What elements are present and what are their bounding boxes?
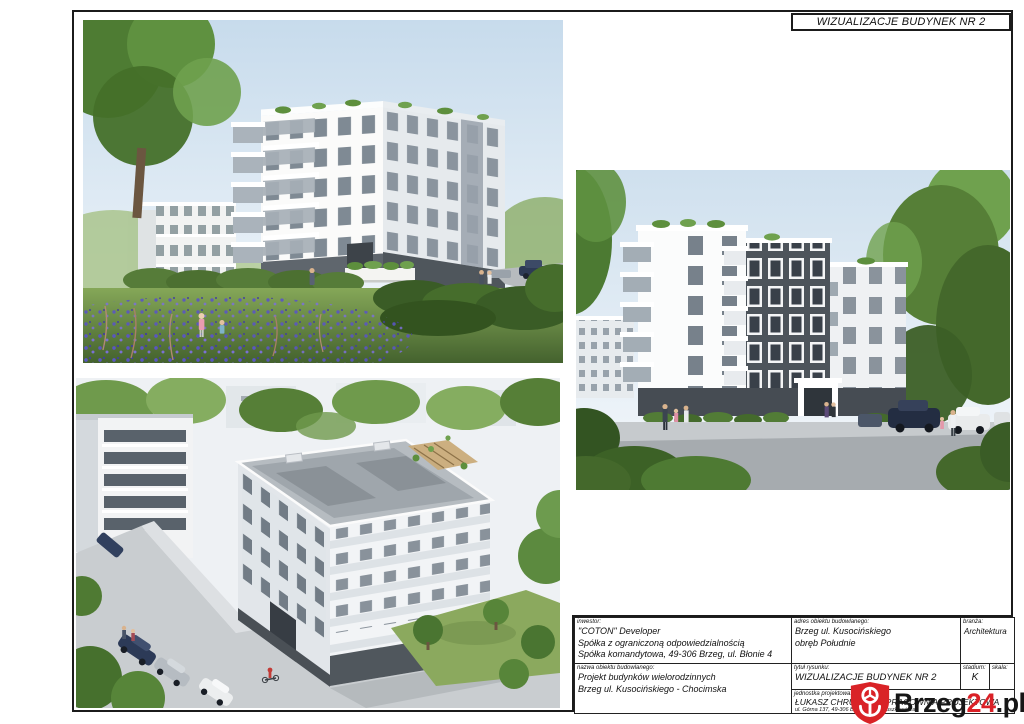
aerial-view-illustration [76,378,560,708]
address-label: adres obiektu budowlanego: [792,618,960,626]
sheet-title-text: WIZUALIZACJE BUDYNEK NR 2 [817,16,986,28]
title-block-cell-object-name: nazwa obiektu budowlanego: Projekt budyn… [574,663,792,714]
branch-label: branża: [961,618,1014,626]
street-view-2-illustration [576,170,1010,490]
drawing-sheet: WIZUALIZACJE BUDYNEK NR 2 [0,0,1024,724]
person-adult [309,268,314,285]
title-block-cell-branch: branża: Architektura [960,617,1015,664]
rendering-street-view-2 [576,170,1010,490]
rendering-street-view-1 [83,20,563,363]
brzeg24-wordmark: Brzeg24.pl [894,690,1024,717]
person-child [219,320,224,334]
sheet-title-box: WIZUALIZACJE BUDYNEK NR 2 [791,13,1011,31]
distant-building-left [576,316,634,398]
drawing-title-label: tytuł rysunku: [792,664,960,672]
title-block-cell-address: adres obiektu budowlanego: Brzeg ul. Kus… [791,617,961,664]
investor-label: inwestor: [575,618,791,626]
stage-label: stadium: [961,664,989,672]
brzeg24-watermark: Brzeg24.pl [849,681,1024,724]
title-block-cell-investor: inwestor: "COTON" Developer Spółka z ogr… [574,617,792,664]
scale-label: skala: [990,664,1014,672]
ground-floor [638,388,906,416]
object-name-label: nazwa obiektu budowlanego: [575,664,791,672]
street-view-1-illustration [83,20,563,363]
rendering-aerial-view [76,378,560,708]
brzeg24-shield-icon [849,681,891,724]
